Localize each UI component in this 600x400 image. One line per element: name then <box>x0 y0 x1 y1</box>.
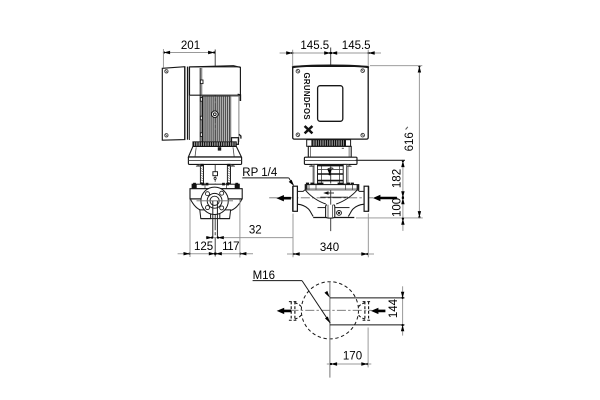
svg-text:100: 100 <box>391 198 403 217</box>
svg-text:340: 340 <box>320 242 339 254</box>
svg-text:125: 125 <box>194 241 213 253</box>
svg-text:32: 32 <box>249 225 262 237</box>
svg-text:201: 201 <box>181 40 200 52</box>
svg-text:170: 170 <box>343 351 362 363</box>
svg-text:616: 616 <box>404 132 416 151</box>
svg-text:182: 182 <box>391 169 403 188</box>
svg-text:145.5: 145.5 <box>300 40 329 52</box>
svg-text:RP 1/4: RP 1/4 <box>242 167 278 179</box>
svg-text:144: 144 <box>388 298 400 318</box>
svg-text:GRUNDFOS: GRUNDFOS <box>302 73 311 120</box>
svg-text:145.5: 145.5 <box>342 40 371 52</box>
svg-text:117: 117 <box>222 241 239 253</box>
svg-text:M16: M16 <box>253 270 275 282</box>
